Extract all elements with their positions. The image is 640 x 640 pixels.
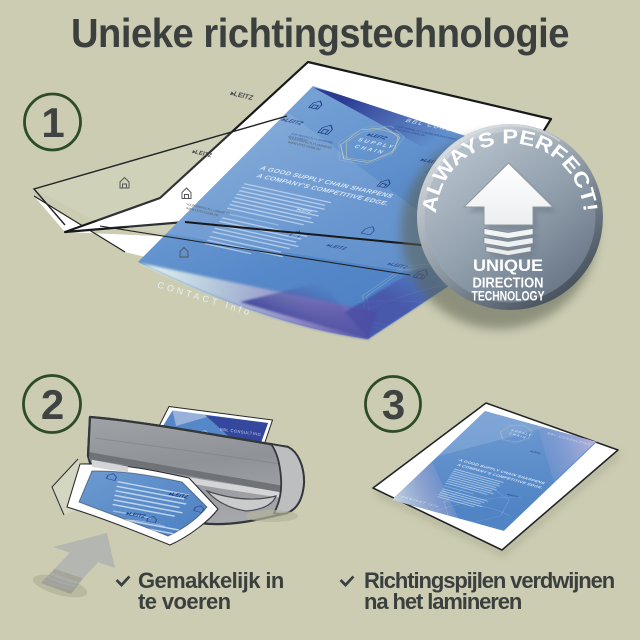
- svg-text:▸LEITZ: ▸LEITZ: [229, 90, 255, 102]
- svg-text:TECHNOLOGY: TECHNOLOGY: [472, 289, 545, 304]
- svg-text:2: 2: [41, 381, 64, 428]
- svg-text:1: 1: [41, 99, 64, 146]
- svg-text:UNIQUE: UNIQUE: [473, 256, 543, 275]
- svg-text:3: 3: [382, 381, 405, 428]
